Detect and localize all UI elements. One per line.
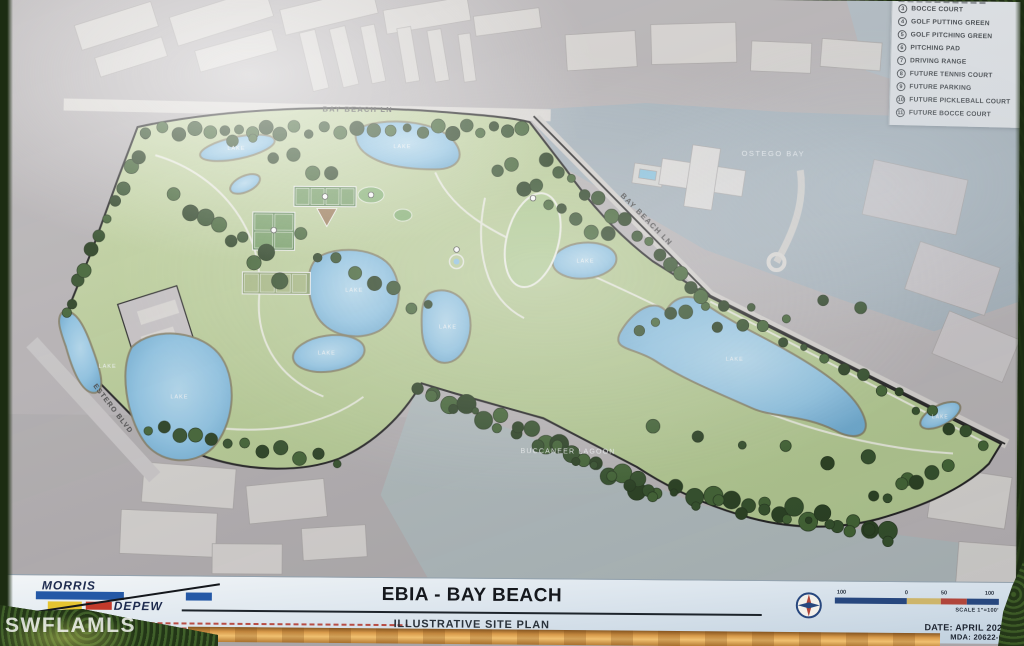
legend-label: GOLF PUTTING GREEN [911, 18, 990, 27]
legend-label: DRIVING RANGE [910, 57, 967, 65]
bay-label: OSTEGO BAY [742, 149, 806, 158]
scale-number: 0 [905, 590, 908, 596]
legend-number: 9 [896, 82, 905, 91]
legend-label: GOLF PITCHING GREEN [911, 31, 993, 40]
scale-number: 50 [941, 590, 947, 596]
legend-number: 3 [898, 4, 907, 13]
logo-text-morris: MORRIS [42, 578, 96, 592]
lake-label: LAKE [393, 144, 411, 150]
legend-number: 11 [896, 108, 905, 117]
title-block: EBIA - BAY BEACH ILLUSTRATIVE SITE PLAN [302, 583, 642, 632]
pitching-green [394, 209, 412, 221]
scale-bar-segments [835, 598, 999, 605]
foliage-edge-right [1015, 0, 1024, 646]
scale-bar: 100 0 50 100 SCALE 1"=100' [835, 590, 1003, 621]
legend-label: FUTURE PARKING [909, 83, 971, 91]
legend-label: FUTURE TENNIS COURT [910, 70, 993, 79]
scale-number: 100 [837, 590, 846, 596]
site-plan-sign-board: BAY BEACH LN BAY BEACH LN OSTEGO BAY BUC… [1, 0, 1020, 646]
lagoon-label: BUCCANEER LAGOON [520, 448, 615, 456]
logo-text-depew: DEPEW [114, 599, 163, 613]
lake-label: LAKE [227, 146, 245, 152]
legend-number: 5 [898, 30, 907, 39]
north-compass-icon [795, 591, 823, 619]
scale-caption: SCALE 1"=100' [955, 607, 998, 613]
legend-label: BOCCE COURT [911, 5, 963, 13]
legend-panel: 3BOCCE COURT 4GOLF PUTTING GREEN 5GOLF P… [889, 0, 1021, 128]
legend-number: 4 [898, 17, 907, 26]
road-label: BAY BEACH LN [323, 105, 393, 115]
legend-number: 7 [897, 56, 906, 65]
lake-label: LAKE [170, 394, 188, 400]
lake-label: LAKE [726, 357, 744, 363]
legend-label: FUTURE PICKLEBALL COURT [909, 96, 1010, 105]
logo-blue-bar-2 [186, 592, 212, 600]
photo-of-site-plan-sign: BAY BEACH LN BAY BEACH LN OSTEGO BAY BUC… [0, 0, 1024, 646]
lake-label: LAKE [99, 364, 117, 370]
lake-label: LAKE [345, 288, 363, 294]
illustrative-site-plan-map: BAY BEACH LN BAY BEACH LN OSTEGO BAY BUC… [1, 0, 1020, 646]
lake-label: LAKE [439, 324, 457, 330]
mls-watermark: SWFLAMLS [5, 614, 136, 638]
legend-number: 8 [897, 69, 906, 78]
legend-label: FUTURE BOCCE COURT [909, 109, 991, 118]
legend-item: 11FUTURE BOCCE COURT [896, 106, 1021, 122]
legend-label: PITCHING PAD [910, 44, 960, 52]
sign-title: EBIA - BAY BEACH [302, 583, 642, 608]
date-text: DATE: APRIL 2022 [924, 622, 1007, 633]
legend-number: 6 [897, 43, 906, 52]
legend-number: 10 [896, 95, 905, 104]
scale-number: 100 [985, 591, 994, 597]
lake-label: LAKE [318, 350, 336, 356]
lake-label: LAKE [576, 259, 594, 265]
foliage-edge-left [0, 0, 13, 646]
lake-label: LAKE [932, 414, 949, 420]
